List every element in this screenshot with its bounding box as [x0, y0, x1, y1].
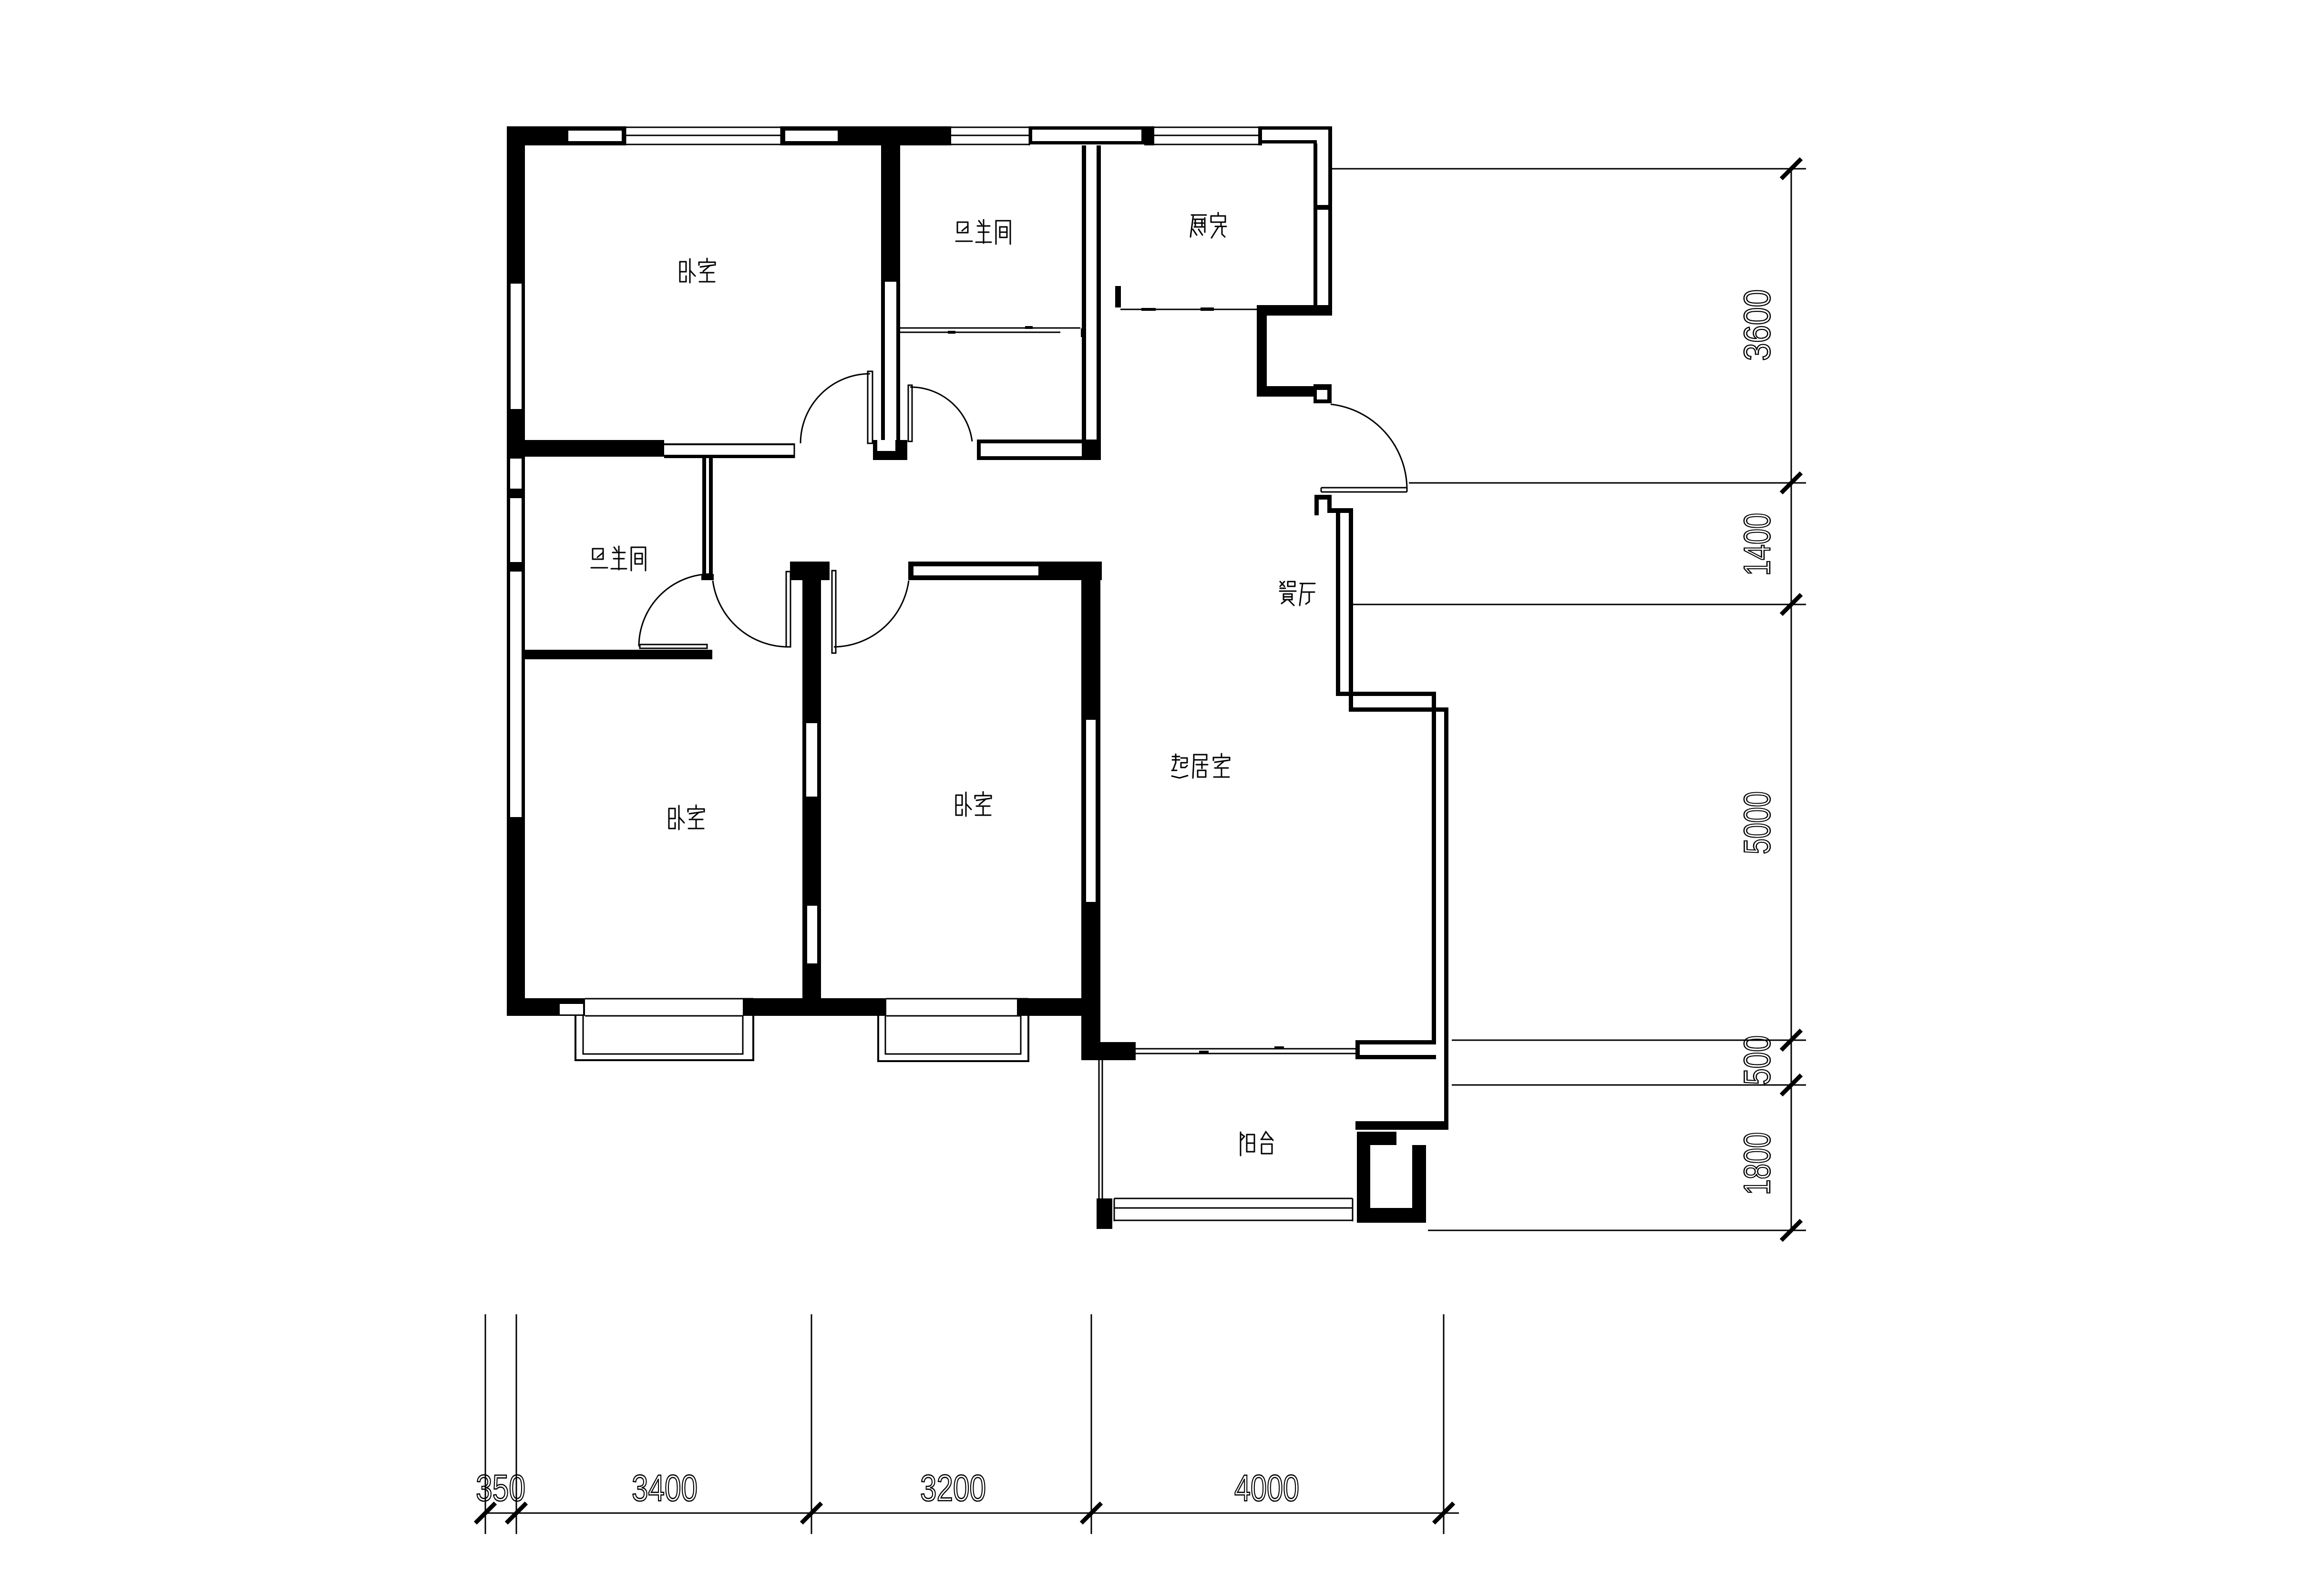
svg-text:1400: 1400 — [1736, 513, 1778, 576]
svg-text:4000: 4000 — [1234, 1467, 1299, 1509]
svg-text:3400: 3400 — [632, 1467, 698, 1509]
svg-text:500: 500 — [1736, 1035, 1778, 1085]
svg-text:3200: 3200 — [920, 1467, 986, 1509]
svg-text:1800: 1800 — [1736, 1132, 1778, 1195]
svg-text:5000: 5000 — [1736, 791, 1778, 854]
svg-text:3600: 3600 — [1736, 289, 1778, 361]
svg-text:350: 350 — [476, 1467, 525, 1509]
